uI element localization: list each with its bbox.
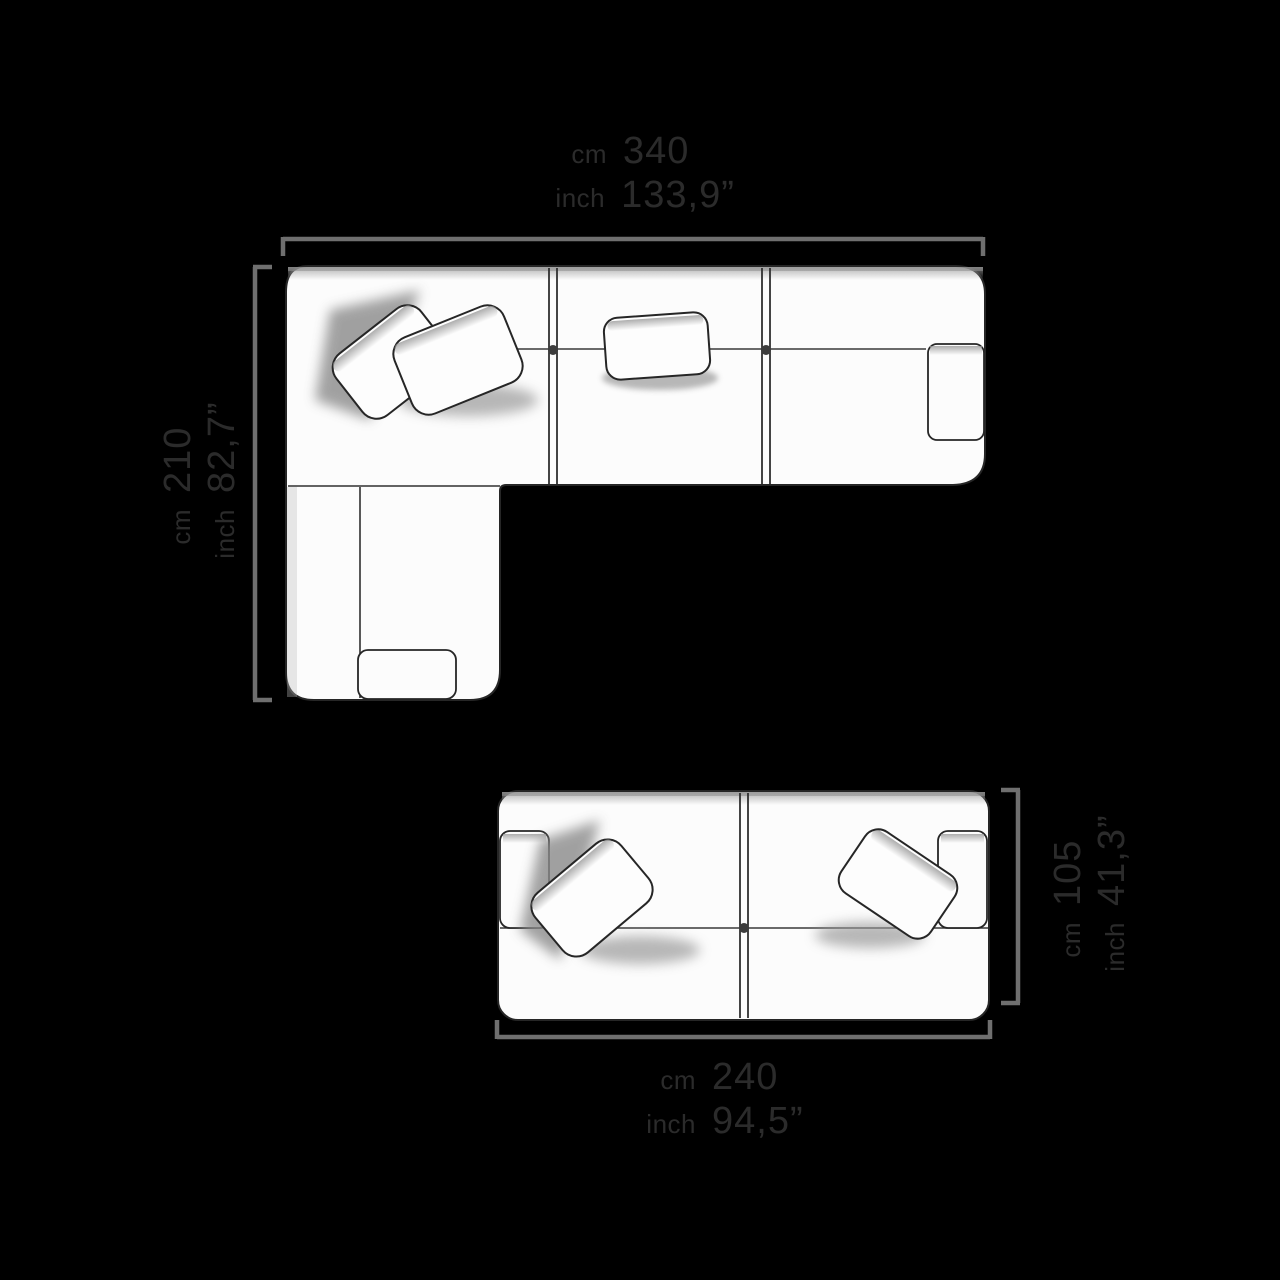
width-inch-row: inch 94,5” (622, 1102, 822, 1140)
width-cm-row: cm 340 (531, 132, 735, 170)
corner-sofa-depth-cm: 210 (159, 383, 197, 493)
two-seat-sofa-depth-cm: 105 (1049, 796, 1087, 906)
two-seat-sofa-width-inch: 94,5” (712, 1102, 822, 1140)
corner-sofa-width-label: cm 340 inch 133,9” (531, 132, 735, 214)
unit-inch: inch (531, 185, 605, 211)
width-inch-row: inch 133,9” (531, 176, 735, 214)
dim-line-left-depth (253, 267, 272, 700)
pillow (603, 311, 711, 380)
corner-sofa-drawing (286, 266, 985, 700)
two-seat-sofa-width-cm: 240 (712, 1058, 822, 1096)
unit-cm: cm (622, 1067, 696, 1093)
corner-sofa-depth-inch: 82,7” (203, 383, 241, 493)
unit-cm: cm (1058, 922, 1084, 996)
two-seat-sofa-width-label: cm 240 inch 94,5” (622, 1058, 822, 1140)
dimension-diagram: cm 340 inch 133,9” cm 210 inch 82,7” cm … (0, 0, 1280, 1280)
corner-sofa-width-cm: 340 (623, 132, 733, 170)
corner-sofa-depth-label: cm 210 inch 82,7” (159, 383, 241, 583)
dim-line-top-width (283, 237, 983, 256)
depth-inch-row: inch 82,7” (203, 383, 241, 583)
unit-inch: inch (622, 1111, 696, 1137)
two-seat-sofa-depth-inch: 41,3” (1093, 796, 1131, 906)
depth-cm-row: cm 105 (1049, 796, 1087, 996)
unit-inch: inch (212, 509, 238, 583)
two-seat-sofa-drawing (498, 791, 989, 1020)
unit-inch: inch (1102, 922, 1128, 996)
two-seat-sofa-depth-label: cm 105 inch 41,3” (1049, 796, 1131, 996)
width-cm-row: cm 240 (622, 1058, 822, 1096)
unit-cm: cm (533, 141, 607, 167)
unit-cm: cm (168, 509, 194, 583)
dim-line-bottom-width (497, 1020, 990, 1039)
depth-inch-row: inch 41,3” (1093, 796, 1131, 996)
dim-line-right-depth (1001, 790, 1020, 1003)
corner-sofa-width-inch: 133,9” (621, 176, 735, 214)
depth-cm-row: cm 210 (159, 383, 197, 583)
